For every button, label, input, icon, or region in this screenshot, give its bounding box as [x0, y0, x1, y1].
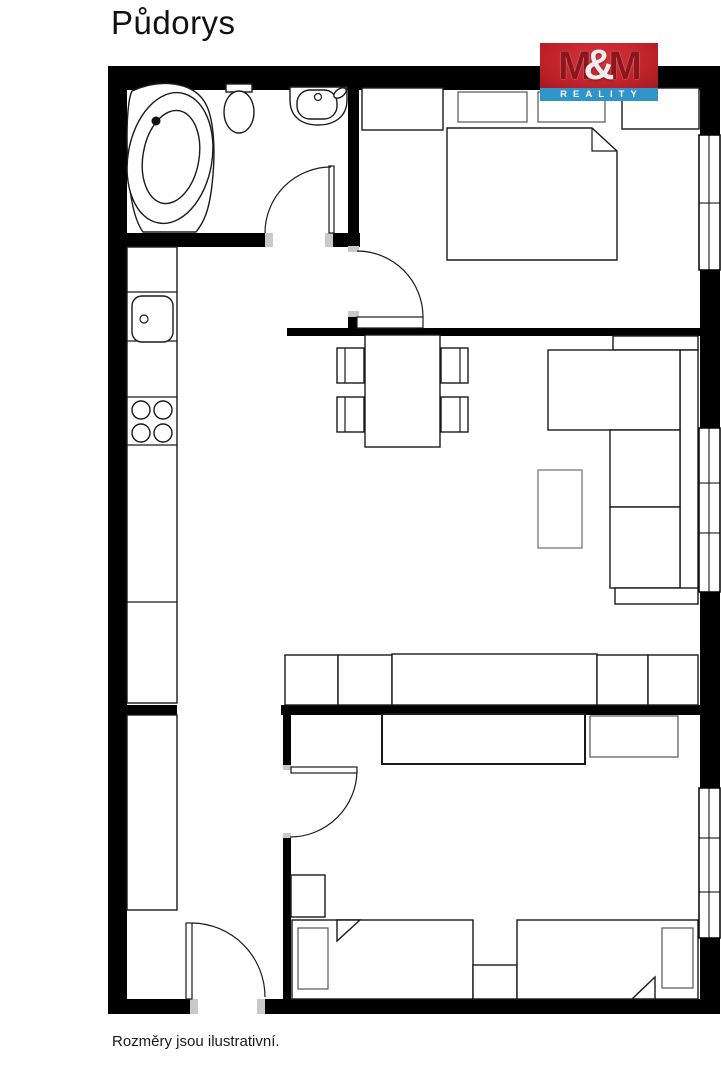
- bathtub: [117, 83, 223, 232]
- floorplan-drawing: [0, 0, 721, 1080]
- window-bedroom: [699, 135, 720, 270]
- children-room-door: [283, 765, 357, 838]
- nightstand-left: [362, 88, 443, 130]
- logo-mm: M&M: [540, 43, 658, 88]
- washbasin: [290, 86, 348, 125]
- mm-reality-logo: M&M REALITY: [540, 43, 658, 101]
- double-bed: [447, 128, 617, 260]
- floorplan-page: Půdorys: [0, 0, 721, 1080]
- kitchen-sink: [132, 296, 173, 342]
- desk: [382, 714, 585, 764]
- window-children-room: [699, 788, 720, 938]
- dining-table: [365, 335, 440, 447]
- ampersand: &: [583, 41, 614, 89]
- chair: [291, 875, 325, 917]
- disclaimer-text: Rozměry jsou ilustrativní.: [112, 1033, 280, 1050]
- single-bed-left: [292, 920, 473, 999]
- entry-door: [186, 923, 265, 1014]
- hall-cabinet: [127, 715, 177, 910]
- nightstand-middle: [473, 965, 517, 999]
- cabinet: [590, 716, 678, 757]
- single-bed-right: [517, 920, 698, 999]
- bedroom-door: [348, 246, 423, 328]
- toilet: [224, 84, 254, 133]
- wardrobe-row: [285, 654, 698, 705]
- coffee-table: [538, 470, 582, 548]
- kitchen-counter: [127, 247, 177, 703]
- logo-reality: REALITY: [540, 88, 658, 101]
- bathroom-door: [265, 166, 334, 247]
- bathtub-drain: [152, 117, 161, 126]
- window-living-room: [699, 428, 720, 592]
